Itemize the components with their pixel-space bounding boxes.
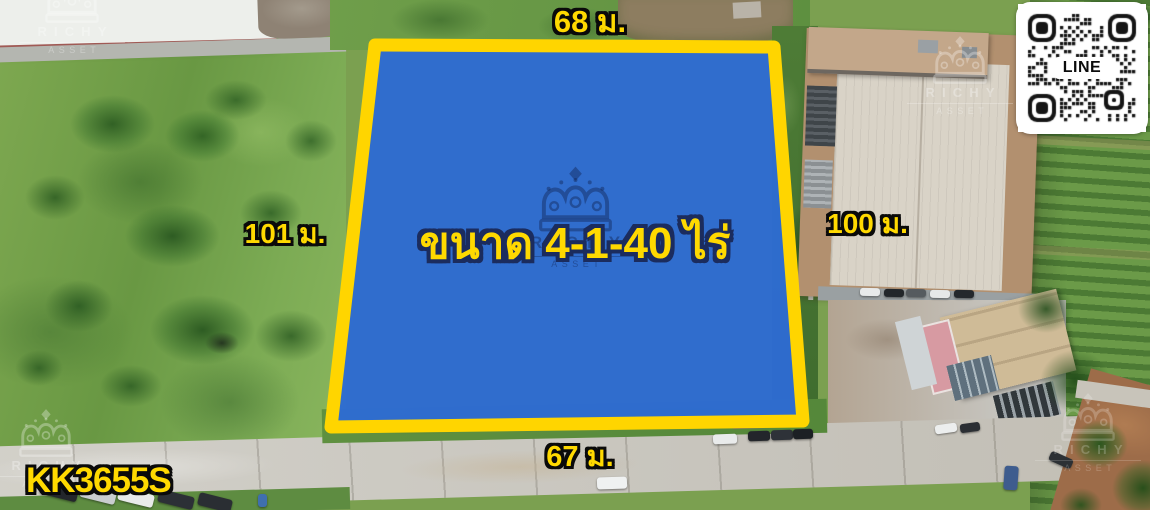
dimension-label-right: 100 ม. bbox=[795, 209, 940, 238]
dimension-label-bottom: 67 ม. bbox=[495, 442, 665, 472]
car bbox=[884, 289, 904, 297]
car bbox=[930, 290, 950, 298]
driveway bbox=[733, 415, 805, 430]
car bbox=[860, 288, 880, 296]
plot-size-label: ขนาด 4-1-40 ไร่ bbox=[370, 221, 780, 267]
car bbox=[748, 431, 770, 442]
car bbox=[597, 476, 627, 489]
roof-vent bbox=[918, 40, 938, 54]
car bbox=[771, 430, 793, 441]
line-qr-code: LINE bbox=[1016, 2, 1148, 134]
car bbox=[954, 290, 974, 298]
car bbox=[793, 429, 813, 440]
ac-units bbox=[805, 85, 837, 146]
dimension-label-top: 68 ม. bbox=[500, 6, 680, 39]
aerial-photo: RICHY ASSET RICHY ASSET RICHY ASSET RICH… bbox=[0, 0, 1150, 510]
side-structure bbox=[803, 160, 833, 209]
qr-line-label: LINE bbox=[1055, 57, 1109, 79]
dimension-label-left: 101 ม. bbox=[215, 219, 355, 248]
truck bbox=[1003, 466, 1019, 491]
bin bbox=[258, 494, 267, 507]
car bbox=[906, 289, 926, 297]
car bbox=[713, 434, 737, 445]
small-structure bbox=[733, 1, 762, 18]
listing-code: KK3655S bbox=[26, 463, 171, 500]
roof-vent bbox=[962, 47, 977, 59]
